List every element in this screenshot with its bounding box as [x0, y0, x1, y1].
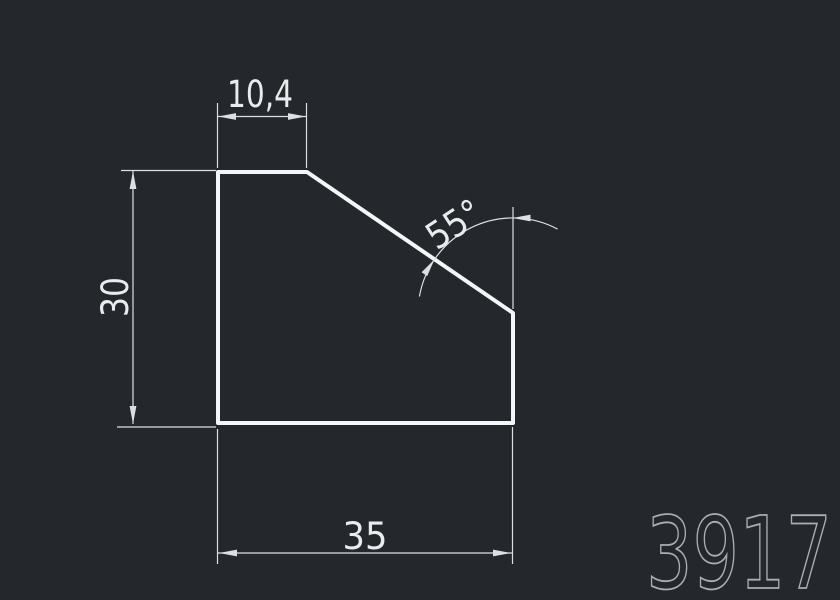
arrowhead-right-icon — [493, 550, 511, 557]
arrowhead-on-chamfer-icon — [422, 259, 435, 276]
dimension-top-width: 10,4 — [218, 73, 307, 168]
dim-top-width-label: 10,4 — [227, 73, 293, 116]
dim-bottom-width-label: 35 — [343, 515, 388, 558]
arrowhead-left-icon — [219, 550, 237, 557]
profile-number-label: 3917 — [646, 495, 832, 600]
cad-canvas: 10,4 30 35 55° 3917 — [0, 0, 840, 600]
dimension-angle: 55° — [418, 191, 557, 309]
dimension-height: 30 — [94, 171, 216, 428]
dimension-bottom-width: 35 — [218, 427, 513, 564]
dim-height-label: 30 — [94, 277, 137, 317]
dim-angle-label: 55° — [418, 191, 490, 259]
arrowhead-down-icon — [130, 406, 137, 424]
arrowhead-on-vertical-icon — [513, 215, 531, 222]
arrowhead-up-icon — [130, 171, 137, 189]
